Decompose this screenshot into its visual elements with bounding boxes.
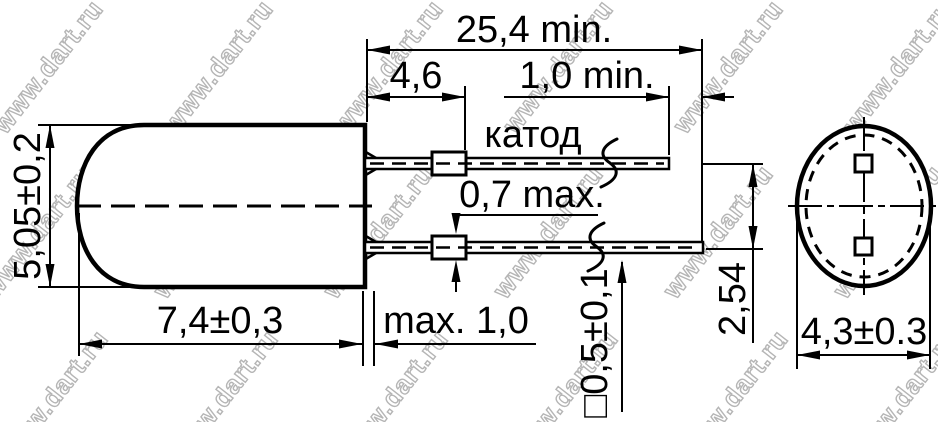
dim-lead-pitch-label: 2,54: [712, 262, 754, 336]
led-dimension-drawing: www.dart.ru www.dart.ru www.dart.ru www.…: [0, 0, 938, 422]
arrowhead: [339, 340, 362, 349]
dim-lead-cross-section-label: □0,5±0,1: [574, 268, 616, 417]
drawing-canvas: www.dart.ru www.dart.ru www.dart.ru www.…: [0, 0, 938, 422]
dim-package-width-label: 4,3±0.3: [801, 311, 928, 353]
watermark-text: www.dart.ru: [671, 324, 794, 422]
dim-lead-tip-clearance-label: 1,0 min.: [519, 55, 654, 97]
dim-lead-length-label: 25,4 min.: [456, 9, 612, 51]
watermark-text: www.dart.ru: [0, 0, 109, 140]
watermark-text: www.dart.ru: [666, 0, 789, 140]
cathode-pin-section: [855, 155, 872, 172]
arrowhead: [749, 226, 758, 249]
end-view: 4,3±0.3: [788, 117, 938, 369]
arrowhead: [442, 93, 465, 102]
arrowhead: [618, 260, 627, 283]
watermark-text: www.dart.ru: [0, 324, 114, 422]
dim-body-length-label: 7,4±0,3: [157, 300, 284, 342]
dim-body-diameter-label: 5,05±0,2: [7, 132, 49, 280]
dim-standoff: max. 1,0: [374, 291, 536, 366]
anode-pin-section: [855, 238, 872, 255]
watermark-text: www.dart.ru: [836, 0, 938, 140]
dim-crimp-offset-label: 4,6: [390, 55, 443, 97]
led-body: [77, 125, 372, 287]
cathode-label: катод: [484, 114, 581, 156]
arrowhead: [452, 260, 461, 282]
arrowhead: [452, 213, 461, 234]
watermark-text: www.dart.ru: [156, 0, 279, 140]
dim-standoff-label: max. 1,0: [383, 300, 529, 342]
dim-crimp-height-label: 0,7 max.: [459, 174, 605, 216]
arrowhead: [679, 46, 702, 55]
